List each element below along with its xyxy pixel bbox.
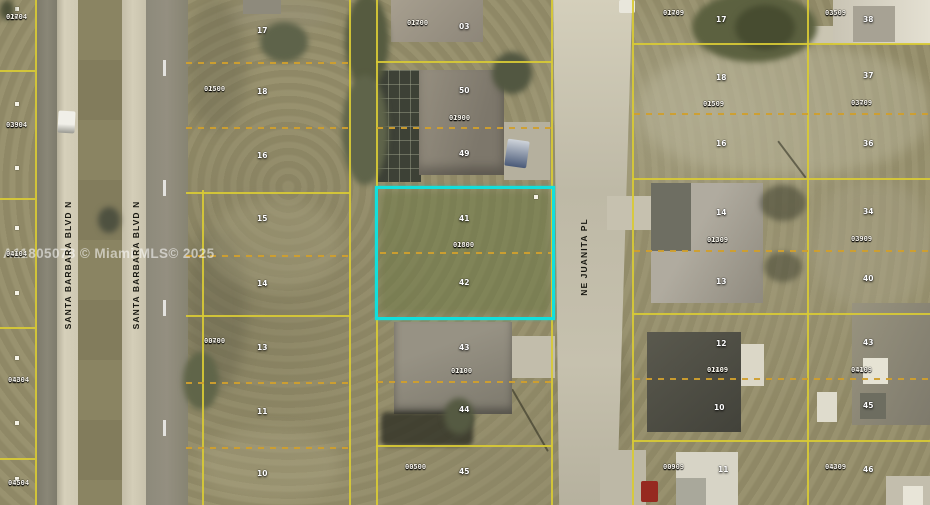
lot-number: 43 bbox=[459, 343, 469, 352]
lane-dash bbox=[163, 180, 166, 196]
utility-trailer bbox=[817, 392, 837, 422]
palm-cluster bbox=[492, 52, 532, 94]
lot-line bbox=[0, 458, 35, 460]
lot-line bbox=[632, 440, 930, 442]
lot-number: 18 bbox=[716, 73, 726, 82]
lot-number: 41 bbox=[459, 214, 469, 223]
red-car bbox=[641, 481, 658, 502]
lot-number: 11 bbox=[718, 465, 728, 474]
lot-number: 42 bbox=[459, 278, 469, 287]
house-roof-wing bbox=[651, 183, 691, 251]
white-shed-roof bbox=[903, 486, 923, 505]
lot-line bbox=[632, 0, 634, 505]
lot-line bbox=[186, 315, 350, 317]
lot-line bbox=[202, 190, 204, 505]
lot-line-dashed bbox=[186, 62, 349, 64]
house-roof-wing bbox=[676, 478, 706, 505]
lot-number: 17 bbox=[257, 26, 267, 35]
palm-shadow bbox=[764, 252, 802, 282]
lot-line-dashed bbox=[634, 250, 930, 252]
lot-line-dashed bbox=[186, 382, 349, 384]
lot-line bbox=[632, 178, 930, 180]
aerial-parcel-map: A11805078 © Miami MLS© 2025 SANTA BARBAR… bbox=[0, 0, 930, 505]
lot-line bbox=[0, 198, 35, 200]
lot-number: 11 bbox=[257, 407, 267, 416]
lot-number: 44 bbox=[459, 405, 469, 414]
lot-number: 16 bbox=[716, 139, 726, 148]
shrub bbox=[183, 352, 219, 410]
boat-on-driveway bbox=[504, 139, 530, 169]
tree-canopy bbox=[444, 398, 474, 434]
lot-number: 16 bbox=[257, 151, 267, 160]
lot-line bbox=[0, 70, 35, 72]
lane-dash bbox=[163, 420, 166, 436]
lot-number: 17 bbox=[716, 15, 726, 24]
lot-number: 13 bbox=[257, 343, 267, 352]
lot-line bbox=[632, 313, 930, 315]
lot-line bbox=[376, 61, 552, 63]
median-bush bbox=[98, 207, 120, 233]
lot-line-dashed bbox=[186, 127, 349, 129]
lot-number: 10 bbox=[257, 469, 267, 478]
lot-line-dashed bbox=[186, 447, 349, 449]
palm-shadow bbox=[760, 185, 806, 221]
lot-number: 45 bbox=[863, 401, 873, 410]
lot-line-dashed bbox=[377, 381, 551, 383]
lot-number: 49 bbox=[459, 149, 469, 158]
lane-dash bbox=[163, 60, 166, 76]
lot-number: 43 bbox=[863, 338, 873, 347]
lot-line bbox=[349, 0, 351, 505]
lot-line-dashed bbox=[377, 127, 551, 129]
lot-number: 38 bbox=[863, 15, 873, 24]
lot-number: 12 bbox=[716, 339, 726, 348]
house-roof-wing bbox=[853, 6, 895, 42]
lot-line bbox=[186, 192, 350, 194]
lot-number: 45 bbox=[459, 467, 469, 476]
house-roof bbox=[647, 332, 741, 432]
lot-line bbox=[376, 445, 552, 447]
lot-number: 18 bbox=[257, 87, 267, 96]
street-label-santa-barbara: SANTA BARBARA BLVD N bbox=[131, 201, 141, 330]
lot-line-dashed bbox=[634, 113, 930, 115]
lot-number: 03 bbox=[459, 22, 469, 31]
lot-number: 36 bbox=[863, 139, 873, 148]
mls-watermark: A11805078 © Miami MLS© 2025 bbox=[3, 246, 215, 261]
lot-line bbox=[0, 327, 35, 329]
house-roof bbox=[391, 0, 483, 42]
lot-number: 15 bbox=[257, 214, 267, 223]
white-truck bbox=[57, 111, 75, 134]
lot-line-dashed bbox=[634, 378, 930, 380]
lot-number: 14 bbox=[716, 208, 726, 217]
lane-dash bbox=[163, 300, 166, 316]
lot-number: 40 bbox=[863, 274, 873, 283]
lot-number: 10 bbox=[714, 403, 724, 412]
highlighted-lot-boundary bbox=[375, 186, 555, 320]
lot-number: 14 bbox=[257, 279, 267, 288]
lot-number: 50 bbox=[459, 86, 469, 95]
house-roof bbox=[243, 0, 281, 14]
lot-number: 13 bbox=[716, 277, 726, 286]
lot-line bbox=[632, 43, 930, 45]
street-label-juanita: NE JUANITA PL bbox=[579, 218, 589, 296]
lot-number: 34 bbox=[863, 207, 873, 216]
driveway bbox=[600, 450, 646, 505]
lot-line bbox=[807, 0, 809, 505]
lot-number: 46 bbox=[863, 465, 873, 474]
driveway bbox=[607, 196, 655, 230]
street-label-santa-barbara: SANTA BARBARA BLVD N bbox=[63, 201, 73, 330]
lot-number: 37 bbox=[863, 71, 873, 80]
